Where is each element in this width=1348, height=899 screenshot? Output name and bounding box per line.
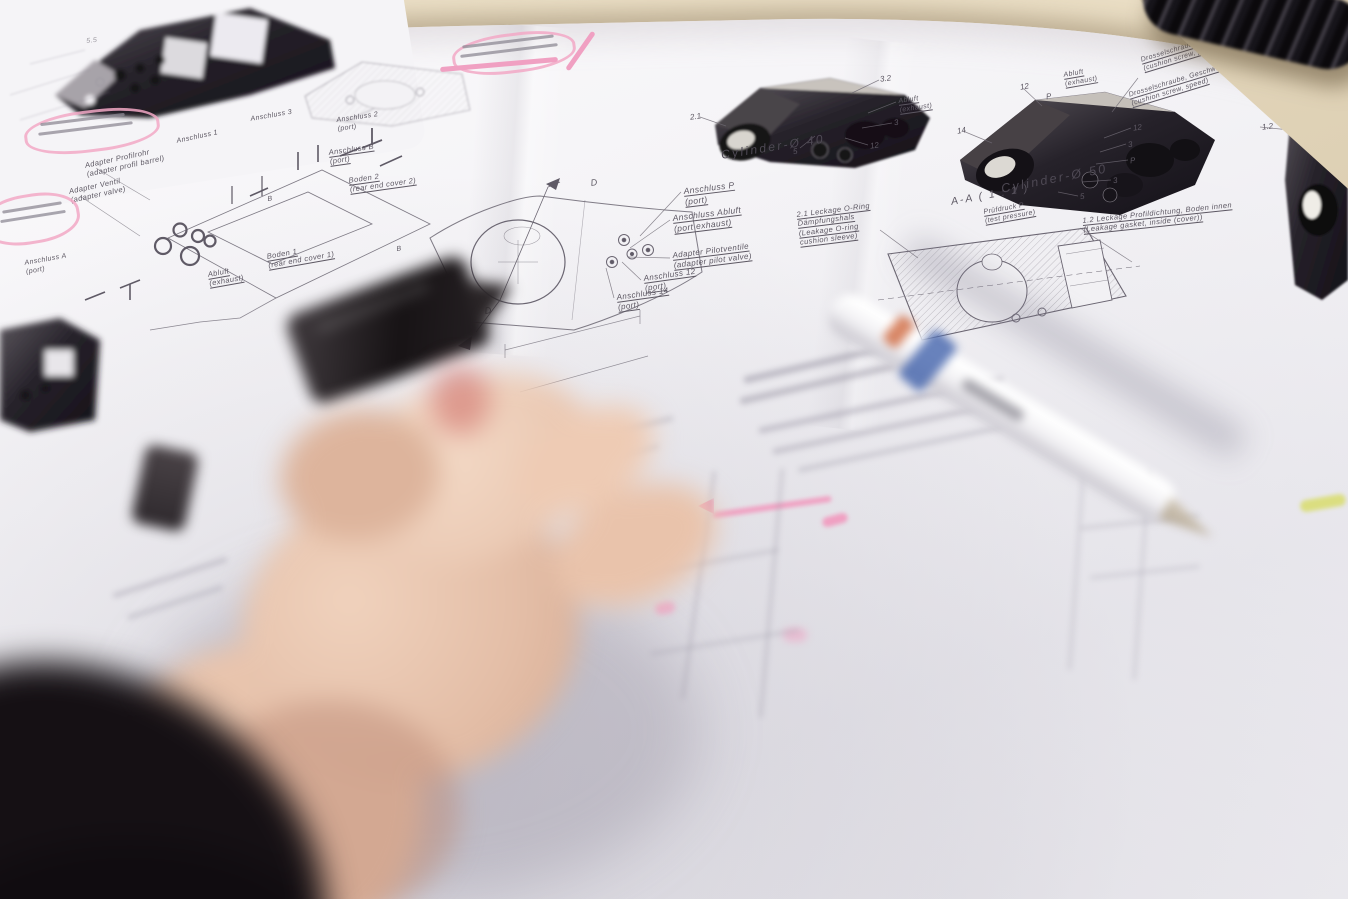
part-callout: 3.2 <box>879 73 891 83</box>
photo-scene: Anschluss 1 Anschluss 3 Anschluss B (por… <box>0 0 1348 899</box>
part-callout: 14 <box>956 125 966 135</box>
red-smudge <box>430 365 490 435</box>
part-callout: 12 <box>869 140 879 150</box>
section-arrow-label: D <box>590 177 598 189</box>
part-callout: 12 <box>1132 122 1142 132</box>
printed-product-photo-topleft <box>55 8 335 118</box>
black-sleeve <box>0 620 480 899</box>
part-callout: 2.1 <box>689 111 701 121</box>
part-callout: P <box>1129 156 1136 166</box>
dimension-label: 5.5 <box>86 37 98 47</box>
part-callout: 1.2 <box>1261 121 1273 131</box>
part-callout: 12 <box>1019 81 1029 91</box>
schematic-view-marker: B <box>396 245 402 254</box>
schematic-view-marker: B <box>267 195 273 204</box>
